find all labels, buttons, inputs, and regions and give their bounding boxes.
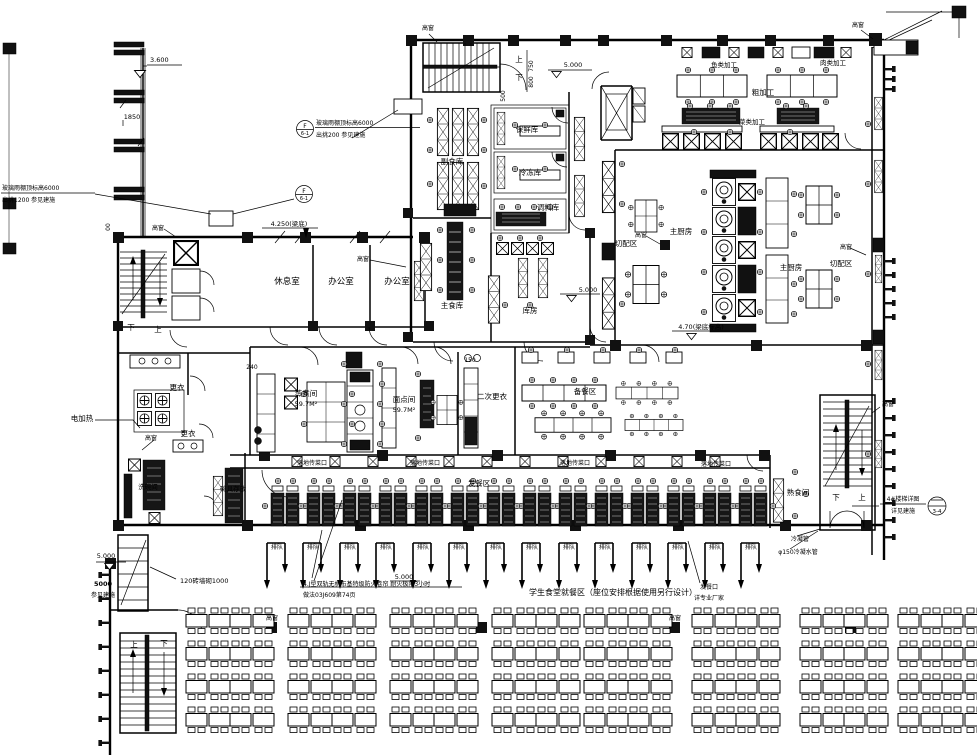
elevation-470: 4.70(梁底标高) bbox=[678, 322, 724, 331]
note-brick-wall: 120砖墙砌1000 bbox=[180, 576, 228, 585]
serving-stalls bbox=[262, 478, 775, 526]
label-queue: 排队 bbox=[271, 543, 283, 551]
room-label-steaming-room: 蒸煮间 bbox=[295, 388, 318, 398]
note-see-arch: 参见建施 bbox=[91, 591, 115, 599]
canopy-note-a2: 出挑200 参见建施 bbox=[316, 131, 365, 139]
label-queue: 排队 bbox=[344, 543, 356, 551]
room-label-rough-processing: 粗加工 bbox=[752, 87, 775, 97]
label-queue: 排队 bbox=[453, 543, 465, 551]
callout-stair4-1: 4#楼梯详图 bbox=[887, 495, 920, 503]
dim-500: 500 bbox=[500, 90, 507, 102]
canopy-symbol-f: F bbox=[302, 188, 306, 195]
elevation-5000-left: 5.000 bbox=[97, 552, 116, 560]
note-fire-shutter-1: 4.J型双轨无机布基特级防火卷帘 耐火极限3小时 bbox=[303, 580, 430, 588]
elevation-5000-mid: 5.000 bbox=[579, 286, 598, 294]
note-high-window: 高窗 bbox=[145, 434, 157, 442]
label-electric-heating: 电加热 bbox=[71, 413, 94, 423]
room-label-fish-processing: 鱼类加工 bbox=[711, 60, 738, 69]
canopy-symbol-61: 6-1 bbox=[300, 196, 308, 202]
note-5000: 5000 bbox=[94, 580, 113, 588]
note-serving-window-2: 详专业厂家 bbox=[694, 594, 724, 602]
elevation-5000-top: 5.000 bbox=[564, 61, 583, 69]
room-label-meat-processing: 肉类加工 bbox=[820, 58, 847, 67]
canopy-symbol-f: F bbox=[303, 123, 307, 130]
room-label-change-1: 更衣 bbox=[170, 382, 185, 392]
label-serving-port-4: 落地传菜口 bbox=[701, 460, 731, 468]
note-high-window: 高窗 bbox=[852, 21, 864, 29]
room-label-office-1: 办公室 bbox=[328, 276, 354, 287]
dining-table-group bbox=[186, 608, 230, 733]
room-label-staple-store: 主食库 bbox=[441, 300, 464, 310]
label-queue: 排队 bbox=[636, 543, 648, 551]
stair-label-up: 上 bbox=[130, 640, 138, 649]
label-queue: 排队 bbox=[672, 543, 684, 551]
room-area-steaming: 59.7M² bbox=[295, 400, 318, 408]
room-label-pastry-room: 面点间 bbox=[393, 395, 416, 404]
dim-240: 240 bbox=[246, 364, 258, 371]
note-fire-shutter-2: 做法03J609第74页 bbox=[303, 591, 356, 599]
note-dining-area: 学生食堂就餐区（座位安排根据使用另行设计） bbox=[529, 587, 697, 597]
room-label-rest-room: 休息室 bbox=[274, 276, 300, 287]
stair-label-up: 上 bbox=[515, 55, 523, 64]
elevation-3600: 3.600 bbox=[150, 56, 169, 64]
label-queue: 排队 bbox=[563, 543, 575, 551]
callout-stair4-2: 详见建施 bbox=[891, 507, 915, 515]
label-queue: 排队 bbox=[380, 543, 392, 551]
note-condensate-2: φ150冷凝水管 bbox=[778, 548, 817, 556]
callout-stair4-ref: 3-4 bbox=[933, 509, 942, 515]
canopy-note-b2: 出挑1200 参见建施 bbox=[2, 196, 55, 204]
elevation-4250: 4.250(梁底) bbox=[271, 219, 308, 228]
dim-150: 150 bbox=[464, 357, 476, 364]
room-label-fresh-store: 保鲜库 bbox=[516, 124, 539, 134]
dim-800: 800 bbox=[528, 76, 535, 88]
stair-label-down: 下 bbox=[515, 73, 523, 82]
note-condensate-1: 冷凝管 bbox=[791, 535, 809, 543]
stair-label-down: 下 bbox=[832, 493, 840, 502]
floor-plan: 休息室 办公室 办公室 副食库 保鲜库 冷冻库 调料库 主食库 库房 切配区 切… bbox=[0, 0, 977, 755]
stair-label-up: 上 bbox=[858, 493, 866, 502]
room-label-freezer: 冷冻库 bbox=[519, 167, 542, 177]
room-label-change-2: 更衣 bbox=[181, 428, 196, 438]
room-area-pastry: 59.7M² bbox=[393, 406, 416, 414]
note-high-window: 高窗 bbox=[840, 243, 852, 251]
room-label-main-kitchen-1: 主厨房 bbox=[670, 226, 693, 236]
label-serving-port-2: 落地传菜口 bbox=[410, 459, 440, 467]
canopy-note-a1: 玻璃雨棚顶标高6000 bbox=[316, 119, 373, 127]
label-queue: 排队 bbox=[490, 543, 502, 551]
stair-label-up: 上 bbox=[154, 325, 162, 334]
room-label-cutting-area-2: 切配区 bbox=[830, 259, 853, 268]
note-high-window: 高窗 bbox=[635, 231, 647, 239]
note-high-window: 高窗 bbox=[357, 255, 369, 263]
label-serving-port-1: 落地传菜口 bbox=[297, 459, 327, 467]
label-queue: 排队 bbox=[599, 543, 611, 551]
room-label-cutting-area-1: 切配区 bbox=[615, 239, 638, 248]
room-label-veg-processing: 菜类加工 bbox=[739, 117, 766, 126]
room-label-office-2: 办公室 bbox=[384, 276, 410, 287]
canopy-note-b1: 玻璃雨棚顶标高6000 bbox=[2, 184, 59, 192]
elevation-5000-bottom: 5.000 bbox=[395, 573, 414, 581]
note-high-window: 高窗 bbox=[152, 224, 164, 232]
note-high-window: 高窗 bbox=[422, 24, 434, 32]
note-serving-window-1: 发餐口 bbox=[700, 583, 718, 591]
label-queue: 排队 bbox=[709, 543, 721, 551]
note-high-window: 高窗 bbox=[669, 614, 681, 622]
room-label-serving-area: 发餐区 bbox=[468, 478, 491, 488]
label-serving-port-3: 落地传菜口 bbox=[560, 459, 590, 467]
label-queue: 排队 bbox=[417, 543, 429, 551]
dim-00: 00 bbox=[105, 223, 112, 231]
room-label-dishware-storage: 碗具存放 bbox=[220, 484, 247, 493]
note-high-window: 高窗 bbox=[882, 400, 894, 408]
label-queue: 排队 bbox=[745, 543, 757, 551]
label-queue: 排队 bbox=[307, 543, 319, 551]
room-label-side-food-store: 副食库 bbox=[441, 156, 464, 166]
canopy-symbol-61: 6-1 bbox=[301, 131, 309, 137]
note-high-window: 高窗 bbox=[266, 614, 278, 622]
room-label-main-kitchen-2: 主厨房 bbox=[780, 262, 803, 272]
floor-plan-page: { "labels": { "rest_room": "休息室", "offic… bbox=[0, 0, 977, 755]
stair-label-down: 下 bbox=[127, 323, 135, 332]
room-label-dishwash: 洗碗间 bbox=[138, 482, 158, 491]
dining-tables bbox=[186, 608, 977, 733]
room-label-prep-area: 备餐区 bbox=[574, 386, 597, 396]
dim-750: 750 bbox=[528, 60, 535, 72]
dim-1850: 1850 bbox=[124, 113, 141, 121]
room-label-storeroom: 库房 bbox=[523, 305, 538, 315]
room-label-seasoning-store: 调料库 bbox=[537, 202, 560, 212]
room-label-second-change: 二次更衣 bbox=[477, 391, 507, 401]
stair-label-down: 下 bbox=[160, 639, 168, 648]
label-queue: 排队 bbox=[526, 543, 538, 551]
room-label-cooked-food: 熟食间 bbox=[787, 487, 810, 497]
